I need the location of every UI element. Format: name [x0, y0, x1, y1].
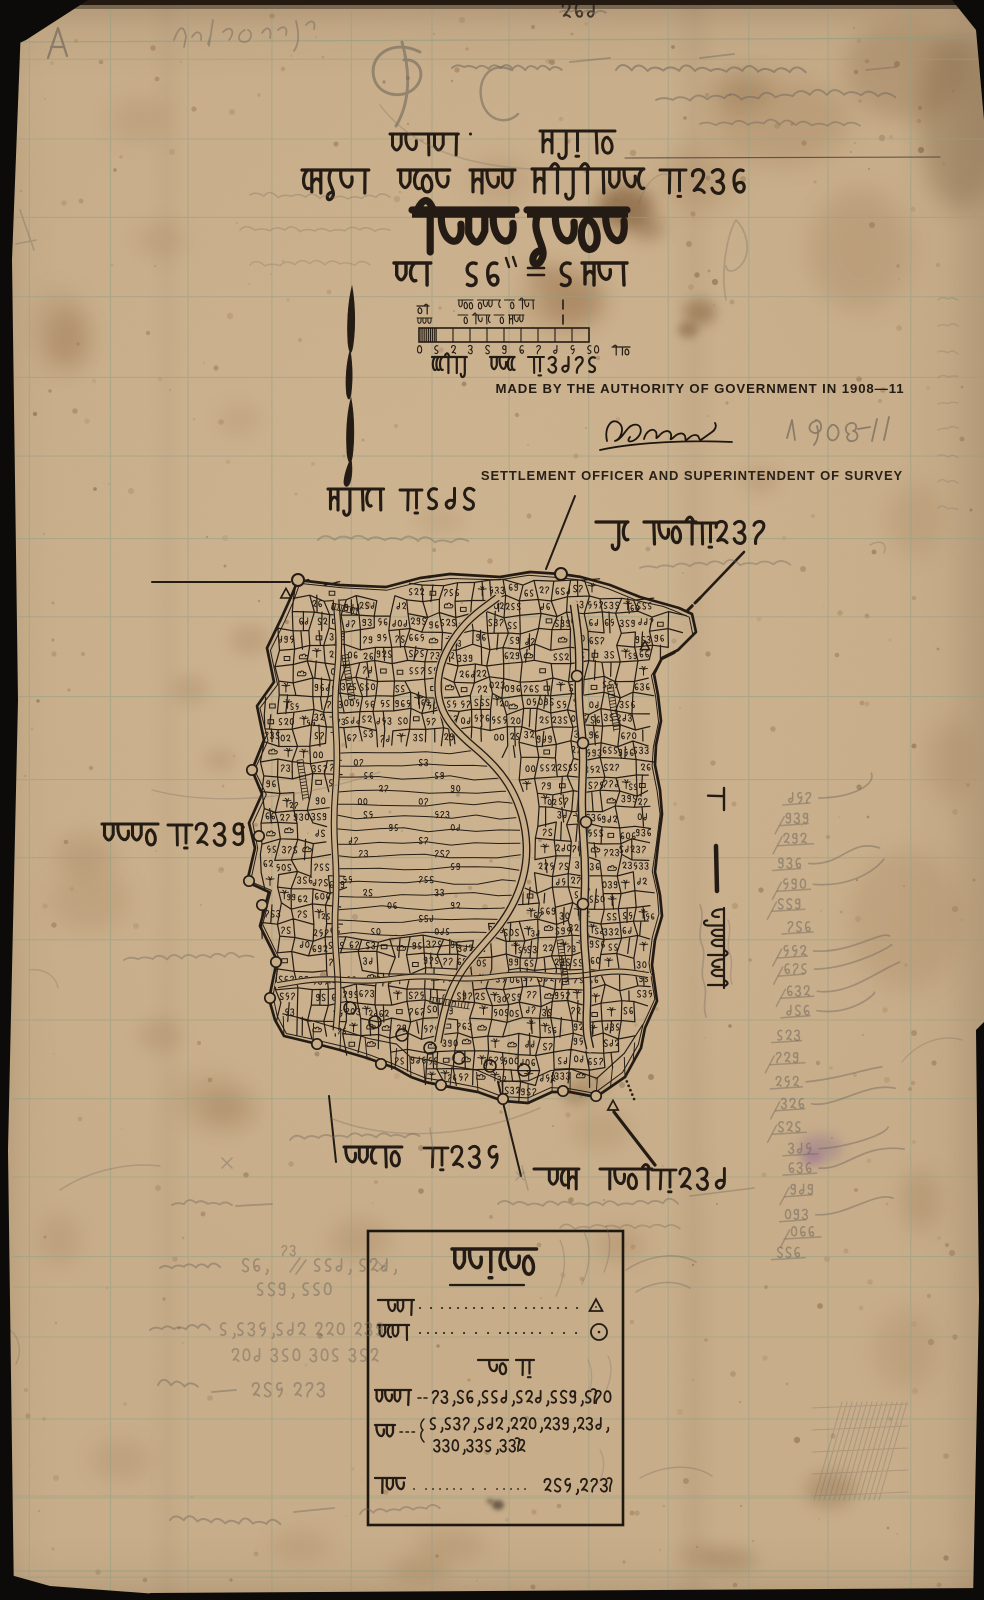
svg-text:SETTLEMENT OFFICER AND SUPERIN: SETTLEMENT OFFICER AND SUPERINTENDENT OF…	[481, 468, 903, 483]
svg-text:MADE BY THE AUTHORITY OF GOVER: MADE BY THE AUTHORITY OF GOVERNMENT IN 1…	[495, 381, 904, 396]
